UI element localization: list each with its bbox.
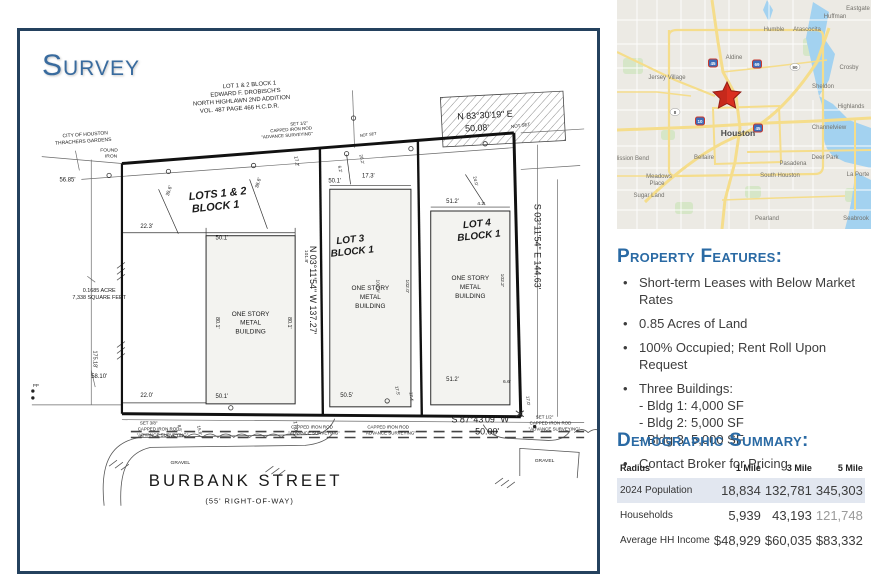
survey-annotations-text: 50.00': [475, 427, 499, 437]
survey-annotations-text: FOUND: [100, 148, 118, 154]
demo-value: $60,035: [763, 528, 814, 553]
demo-row: Average HH Income$48,929$60,035$83,332: [617, 528, 865, 553]
map-labels-text: Crosby: [839, 65, 858, 71]
location-map: 45691045890 EastgateHuffmanHumbleAtascoc…: [617, 0, 871, 229]
survey-annotations-text: 175.18': [91, 351, 97, 369]
survey-annotations-text: PP: [33, 383, 39, 388]
demo-value: 43,193: [763, 503, 814, 528]
survey-annotations-text: 6.2': [337, 165, 343, 173]
survey-annotations-text: 7,338 SQUARE FEET: [72, 295, 126, 301]
route-shield-text: 10: [697, 119, 703, 124]
route-shield: 90: [790, 63, 800, 70]
survey-annotations-text: BURBANK STREET: [149, 471, 343, 490]
map-labels-text: Channelview: [812, 125, 847, 131]
feature-item: 100% Occupied; Rent Roll Upon Request: [617, 339, 867, 373]
map-labels-text: Seabrook: [843, 216, 870, 222]
survey-annotations-text: N 03°11'54" W 137.27': [308, 246, 318, 335]
demo-column-header: 3 Mile: [763, 460, 814, 478]
survey-annotations-text: "ADVANCE SURVEYING": [137, 432, 189, 437]
map-labels-text: Atascocita: [793, 27, 821, 33]
map-labels-text: Deer Park: [811, 155, 839, 161]
route-shield: 10: [696, 117, 705, 125]
map-labels-text: Highlands: [838, 104, 865, 110]
map-labels-text: Mission Bend: [617, 156, 649, 162]
survey-annotations-text: 51.2': [446, 377, 459, 383]
survey-annotations-text: METAL: [460, 284, 481, 291]
demo-value: $83,332: [814, 528, 865, 553]
route-shield-text: 45: [710, 61, 716, 66]
route-shield: 69: [753, 60, 762, 68]
survey-annotations-text: 0.1685 ACRE: [83, 288, 116, 294]
map-labels-text: Huffman: [824, 14, 847, 20]
survey-annotations-text: IRON: [105, 154, 118, 160]
route-shield-text: 45: [755, 126, 761, 131]
map-labels-text: Aldine: [726, 55, 743, 61]
map-labels-text: Houston: [721, 128, 755, 138]
survey-annotations-text: CAPPED IRON ROD: [530, 421, 572, 426]
survey-annotations-text: 50.08': [465, 122, 490, 133]
demo-value: 18,834: [712, 478, 763, 503]
survey-annotations-text: CAPPED IRON ROD: [291, 425, 333, 430]
survey-annotations-text: 58.10': [91, 374, 107, 380]
survey-annotations-text: 38.6': [254, 177, 263, 189]
survey-annotations-text: ONE STORY: [452, 275, 490, 282]
survey-annotations-text: 80.1': [214, 317, 220, 329]
survey-annotations-text: ONE STORY: [232, 311, 270, 318]
demo-value: 121,748: [814, 503, 865, 528]
survey-annotations-text: 50.1': [216, 394, 229, 400]
survey-annotations-text: 15.8': [196, 425, 203, 435]
survey-annotations-text: 102.0': [404, 280, 410, 293]
survey-annotations-text: 102.2': [499, 274, 505, 287]
demo-value: 132,781: [763, 478, 814, 503]
route-shield-text: 90: [792, 65, 798, 70]
map-labels-text: Humble: [764, 27, 785, 33]
survey-annotations-text: SET 1/2": [536, 415, 554, 420]
feature-item: Short-term Leases with Below Market Rate…: [617, 274, 867, 308]
property-features-heading: Property Features:: [617, 246, 867, 268]
map-labels-text: Meadows: [646, 174, 672, 180]
map-labels-text: Sugar Land: [633, 193, 664, 199]
survey-annotations-text: 50.1': [216, 236, 229, 242]
survey-annotations-text: METAL: [360, 294, 381, 301]
survey-annotations-text: 101.8': [303, 250, 309, 263]
survey-annotations-text: S 87°43'09" W: [452, 415, 510, 425]
demographic-summary-heading: Demographic Summary:: [617, 430, 855, 452]
map-labels-text: Eastgate: [846, 6, 870, 12]
survey-annotations-text: "ADVANCE SURVEYING": [288, 431, 340, 436]
survey-annotations-text: 22.3': [140, 224, 153, 230]
survey-annotations-text: BUILDING: [455, 293, 485, 300]
survey-annotations-text: "ADVANCE SURVEYING": [261, 131, 313, 140]
map-labels-text: Sheldon: [812, 84, 834, 90]
survey-annotations-text: NOT SET: [359, 131, 377, 138]
survey-drawing: LOT 1 & 2 BLOCK 1EDWARD F. DROBISCH'SNOR…: [20, 31, 597, 571]
survey-annotations-text: 17.3': [362, 173, 375, 179]
survey-annotations-text: GRAVEL: [170, 460, 190, 466]
survey-title: Survey: [42, 49, 140, 83]
lot3-line: [320, 148, 323, 416]
survey-annotations-text: S 03°11'54" E 144.63': [533, 204, 543, 290]
survey-annotations-text: (55' RIGHT-OF-WAY): [205, 497, 293, 506]
survey-annotations-text: 4.2': [477, 201, 485, 207]
map-labels-text: Bellaire: [694, 155, 715, 161]
demo-row-label: Average HH Income: [617, 528, 712, 553]
demographic-summary-section: Demographic Summary: Radius1 Mile3 Mile5…: [617, 430, 855, 553]
demo-row: 2024 Population18,834132,781345,303: [617, 478, 865, 503]
survey-annotations-text: 6.6': [503, 379, 511, 385]
feature-subitem-text: - Bldg 1: 4,000 SF: [639, 397, 867, 414]
survey-annotations-text: ONE STORY: [352, 285, 390, 292]
route-shield: 8: [670, 108, 680, 115]
survey-annotations-text: 22.0': [140, 393, 153, 399]
feature-item-text: 100% Occupied; Rent Roll Upon Request: [639, 340, 826, 372]
survey-annotations-text: CAPPED IRON ROD: [138, 427, 180, 432]
survey-annotations-text: GRAVEL: [535, 458, 555, 464]
demo-value: 5,939: [712, 503, 763, 528]
survey-annotations-text: SET 3/8": [140, 421, 158, 426]
feature-item: 0.85 Acres of Land: [617, 315, 867, 332]
demo-column-header: Radius: [617, 460, 712, 478]
survey-annotations-text: 17.2': [292, 156, 300, 167]
demographics-table: Radius1 Mile3 Mile5 Mile 2024 Population…: [617, 460, 865, 553]
survey-annotations-text: BUILDING: [355, 303, 385, 310]
feature-item-text: 0.85 Acres of Land: [639, 316, 747, 331]
survey-annotations-text: METAL: [240, 320, 261, 327]
survey-annotations-text: 24.0': [472, 176, 479, 186]
demo-column-header: 5 Mile: [814, 460, 865, 478]
map-labels-text: Pearland: [755, 216, 779, 222]
survey-annotations-text: BUILDING: [235, 329, 265, 336]
survey-annotations-text: 17.0': [525, 396, 531, 406]
demo-row-label: Households: [617, 503, 712, 528]
map-labels-text: La Porte: [847, 172, 870, 178]
survey-annotations-text: 80.1': [286, 317, 292, 329]
feature-subitem-text: - Bldg 2: 5,000 SF: [639, 414, 867, 431]
survey-panel: LOT 1 & 2 BLOCK 1EDWARD F. DROBISCH'SNOR…: [17, 28, 600, 574]
survey-annotations-text: "ADVANCE SURVEYING": [529, 427, 581, 432]
survey-annotations-text: 56.85': [60, 177, 76, 183]
demo-value: 345,303: [814, 478, 865, 503]
demo-column-header: 1 Mile: [712, 460, 763, 478]
survey-annotations-text: "ADVANCE SURVEYING": [364, 431, 416, 436]
survey-annotations-text: 51.2': [446, 199, 459, 205]
route-shield-text: 69: [754, 62, 760, 67]
map-labels-text: Jersey Village: [648, 75, 686, 81]
survey-annotations-text: 50.5': [340, 393, 353, 399]
map-labels-text: Pasadena: [779, 161, 807, 167]
survey-annotations-text: 50.1': [328, 178, 341, 184]
map-labels-text: Place: [649, 181, 665, 187]
demo-row: Households5,93943,193121,748: [617, 503, 865, 528]
demo-value: $48,929: [712, 528, 763, 553]
survey-annotations-text: 35.6': [165, 185, 174, 197]
feature-item-text: Three Buildings:: [639, 381, 733, 396]
map-image: 45691045890 EastgateHuffmanHumbleAtascoc…: [617, 0, 871, 229]
survey-annotations-text: 20.2': [358, 154, 365, 164]
demo-row-label: 2024 Population: [617, 478, 712, 503]
map-labels-text: South Houston: [760, 173, 800, 179]
lot4-line: [418, 141, 422, 417]
survey-annotations-text: 17.4': [408, 392, 414, 402]
survey-annotations-text: CAPPED IRON ROD: [367, 425, 409, 430]
route-shield: 45: [709, 59, 718, 67]
feature-item-text: Short-term Leases with Below Market Rate…: [639, 275, 855, 307]
